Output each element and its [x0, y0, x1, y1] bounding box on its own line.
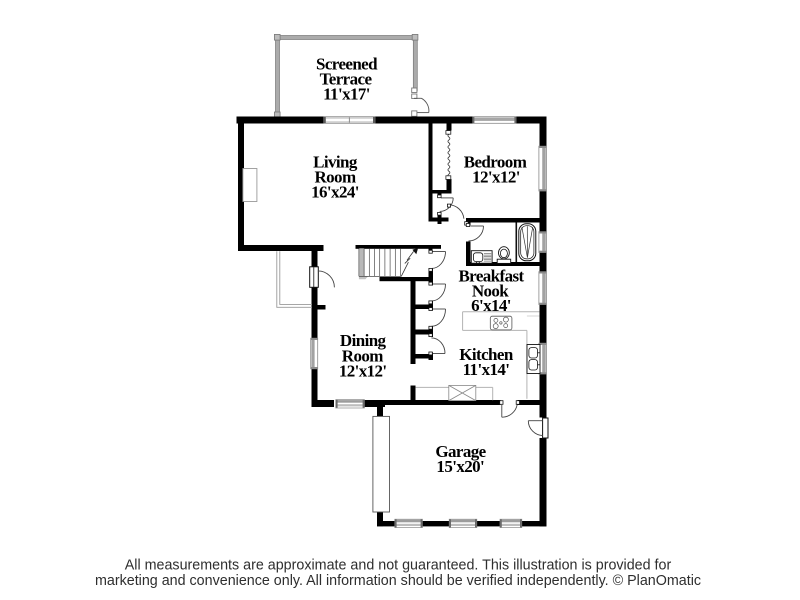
svg-text:16'x24': 16'x24': [311, 183, 359, 202]
svg-text:marketing and convenience only: marketing and convenience only. All info…: [95, 573, 701, 589]
svg-text:12'x12': 12'x12': [339, 362, 387, 381]
svg-text:All measurements are approxima: All measurements are approximate and not…: [125, 558, 672, 574]
svg-text:6'x14': 6'x14': [471, 296, 511, 315]
svg-text:11'x14': 11'x14': [463, 360, 510, 379]
svg-text:11'x17': 11'x17': [323, 85, 370, 104]
svg-text:15'x20': 15'x20': [436, 457, 484, 476]
svg-text:12'x12': 12'x12': [472, 168, 520, 187]
